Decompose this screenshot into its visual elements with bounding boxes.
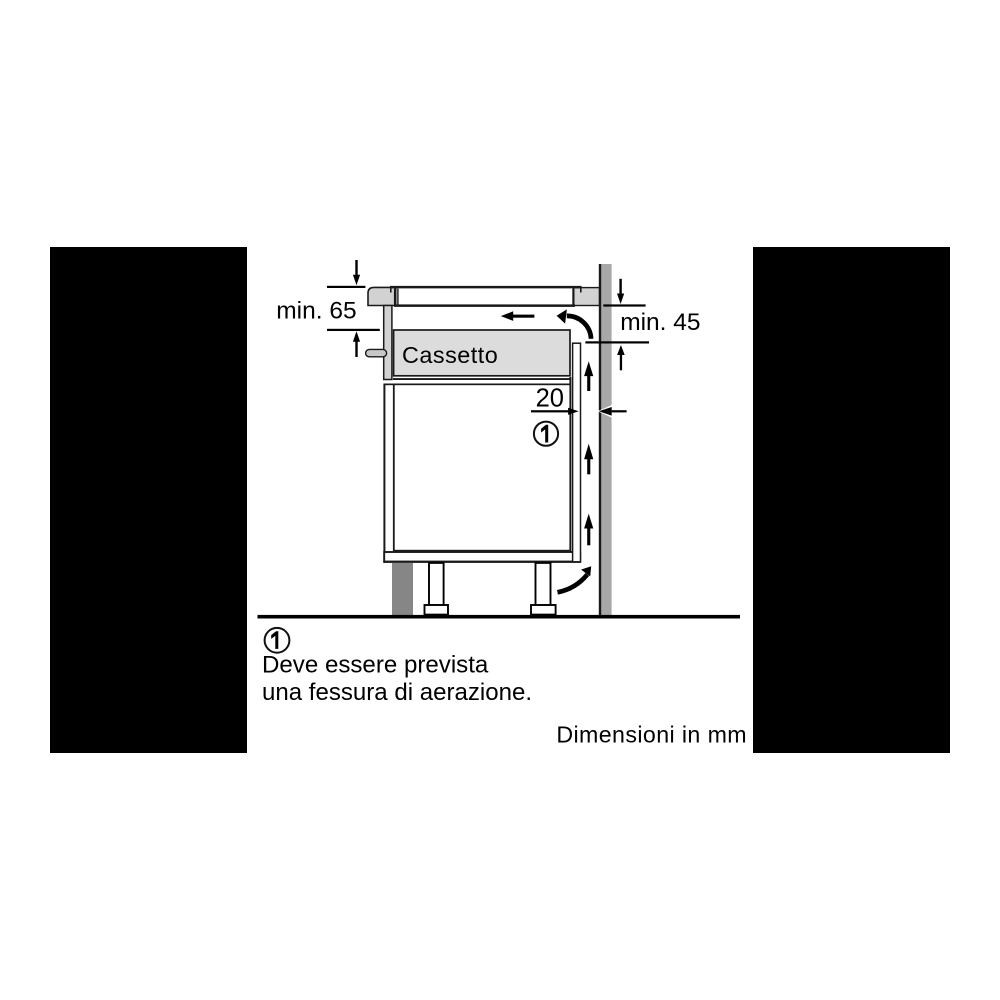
svg-text:Cassetto: Cassetto (402, 342, 498, 368)
svg-text:Dimensioni in mm: Dimensioni in mm (556, 721, 747, 747)
svg-text:min. 65: min. 65 (276, 297, 356, 324)
svg-text:20: 20 (536, 384, 564, 412)
svg-text:Deve essere prevista: Deve essere prevista (262, 651, 489, 678)
svg-text:min. 45: min. 45 (620, 309, 700, 336)
svg-text:una fessura di aerazione.: una fessura di aerazione. (262, 679, 532, 706)
